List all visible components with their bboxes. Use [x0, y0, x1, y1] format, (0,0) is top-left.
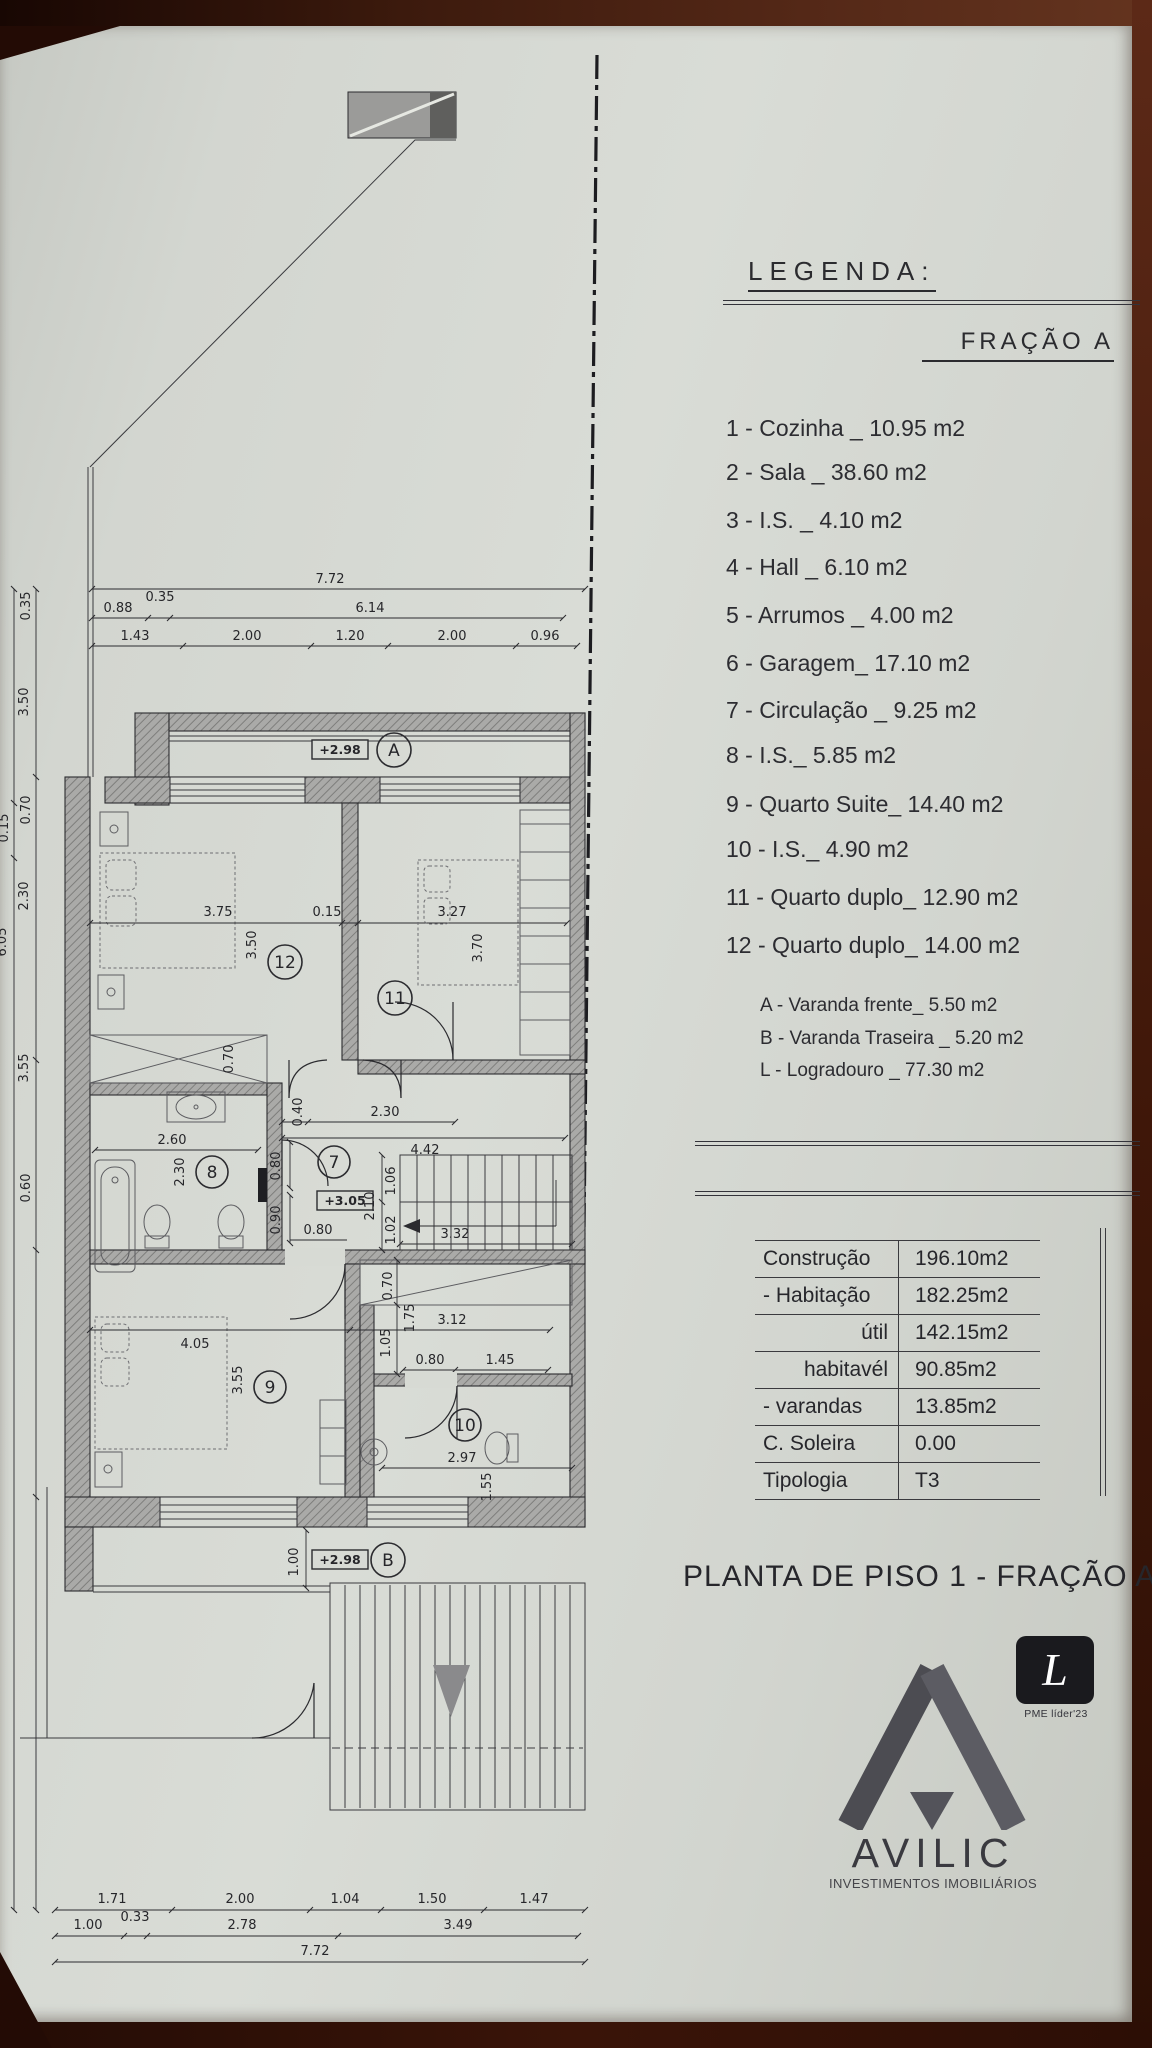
balcony-b: 1.00 +2.98 B	[93, 1527, 405, 1592]
sheet-title: PLANTA DE PISO 1 - FRAÇÃO A	[683, 1560, 1152, 1594]
dim-label: 1.55	[480, 1473, 495, 1502]
room-label: B	[382, 1551, 394, 1571]
table-row-label: - varandas	[755, 1395, 898, 1419]
legend-item: 4 - Hall _ 6.10 m2	[726, 554, 1136, 581]
dim-label: 1.75	[403, 1304, 418, 1333]
frame-line	[1100, 1228, 1106, 1496]
windows	[160, 777, 520, 1527]
dim-label: 2.00	[233, 629, 262, 644]
dim-label: 7.72	[316, 572, 345, 587]
dim-label: 2.60	[158, 1133, 187, 1148]
dim-label: 1.00	[74, 1918, 103, 1933]
table-row-label: C. Soleira	[755, 1432, 898, 1456]
dim-label: 1.71	[98, 1892, 127, 1907]
photo-background-bottom	[0, 2022, 1152, 2048]
dim-label: 3.50	[17, 688, 32, 717]
legend-item: 5 - Arrumos _ 4.00 m2	[726, 602, 1136, 629]
legend-item: 7 - Circulação _ 9.25 m2	[726, 697, 1136, 724]
legend-item: 6 - Garagem_ 17.10 m2	[726, 650, 1136, 677]
room-label: 11	[384, 989, 406, 1009]
dim-label: 0.80	[416, 1353, 445, 1368]
table-row-label: habitavél	[755, 1358, 898, 1382]
table-row: - Habitação 182.25m2	[755, 1278, 1040, 1315]
dim-label: 1.02	[384, 1216, 399, 1245]
table-row: útil 142.15m2	[755, 1315, 1040, 1352]
room-9-suite: 4.05 3.12 3.55 9	[87, 1248, 553, 1487]
terrace-deck	[330, 1583, 585, 1810]
divider-rule	[695, 1191, 1140, 1196]
table-row-value: 142.15m2	[898, 1315, 1040, 1351]
photo-of-floor-plan-sheet: 7.72 0.88 0.35 6.14 1.43 2.00 1.20 2.00 …	[0, 0, 1152, 2048]
dim-label: 2.00	[226, 1892, 255, 1907]
bathroom-10: 10 2.97 1.55	[361, 1372, 575, 1501]
table-row-value: 90.85m2	[898, 1352, 1040, 1388]
entrance-canopy	[348, 92, 456, 138]
dim-label: 4.05	[181, 1337, 210, 1352]
photo-background-top	[0, 0, 1152, 26]
avilic-logo-mark	[822, 1640, 1042, 1830]
dim-label: 0.90	[269, 1206, 284, 1235]
brand-tagline: INVESTIMENTOS IMOBILIÁRIOS	[798, 1876, 1068, 1891]
dim-label: 0.96	[531, 629, 560, 644]
fraction-heading: FRAÇÃO A	[922, 328, 1114, 362]
room-11-quarto: 3.27 3.70 11	[378, 810, 570, 1060]
dim-label: 0.70	[19, 796, 34, 825]
table-row-value: 0.00	[898, 1426, 1040, 1462]
legend-item: 8 - I.S._ 5.85 m2	[726, 742, 1136, 769]
legend-item: 10 - I.S._ 4.90 m2	[726, 836, 1136, 863]
dim-label: 0.35	[19, 592, 34, 621]
areas-table: Construção 196.10m2 - Habitação 182.25m2…	[755, 1240, 1040, 1500]
room-label: A	[388, 741, 400, 761]
dim-label: 0.33	[121, 1910, 150, 1925]
legend-sub-item: A - Varanda frente_ 5.50 m2	[760, 995, 1140, 1017]
table-row-label: útil	[755, 1321, 898, 1345]
pme-lider-badge: L	[1016, 1636, 1094, 1704]
dim-label: 0.70	[222, 1045, 237, 1074]
level-label: +2.98	[319, 1552, 360, 1567]
table-row: Tipologia T3	[755, 1463, 1040, 1500]
dim-label: 0.35	[146, 590, 175, 605]
legend-item: 12 - Quarto duplo_ 14.00 m2	[726, 932, 1136, 959]
dim-label: 3.49	[444, 1918, 473, 1933]
legend-item: 11 - Quarto duplo_ 12.90 m2	[726, 884, 1136, 911]
room-label: 9	[265, 1378, 276, 1398]
staircase: 2.10 1.06 1.02	[363, 1152, 572, 1253]
table-row-value: 196.10m2	[898, 1241, 1040, 1277]
dim-label: 0.80	[304, 1223, 333, 1238]
dimension-chain-top: 7.72 0.88 0.35 6.14 1.43 2.00 1.20 2.00 …	[89, 572, 588, 649]
dim-label: 3.70	[471, 934, 486, 963]
photo-background-right	[1132, 0, 1152, 2048]
dim-label: 3.55	[17, 1054, 32, 1083]
brand-wordmark: AVILIC	[828, 1830, 1038, 1877]
dim-label: 0.15	[0, 814, 12, 843]
dim-label: 3.75	[204, 905, 233, 920]
divider-rule	[695, 1141, 1140, 1146]
direction-arrow	[433, 1665, 470, 1717]
table-row: C. Soleira 0.00	[755, 1426, 1040, 1463]
room-12-quarto: 3.75 0.15 3.50 12 0.70	[87, 812, 570, 1083]
level-label: +2.98	[319, 742, 360, 757]
table-row-value: 182.25m2	[898, 1278, 1040, 1314]
dim-label: 1.47	[520, 1892, 549, 1907]
dim-label: 1.06	[384, 1167, 399, 1196]
dim-label: 1.20	[336, 629, 365, 644]
dim-label: 1.43	[121, 629, 150, 644]
dim-label: 1.00	[287, 1548, 302, 1577]
table-row: habitavél 90.85m2	[755, 1352, 1040, 1389]
dim-label: 3.32	[441, 1227, 470, 1242]
legend-item: 9 - Quarto Suite_ 14.40 m2	[726, 791, 1136, 818]
dim-label: 2.30	[173, 1158, 188, 1187]
dim-label: 3.12	[438, 1313, 467, 1328]
dim-label: 2.97	[448, 1451, 477, 1466]
dim-label: 4.42	[411, 1143, 440, 1158]
dim-label: 0.15	[313, 905, 342, 920]
legend-item: 2 - Sala _ 38.60 m2	[726, 459, 1136, 486]
table-row: Construção 196.10m2	[755, 1241, 1040, 1278]
room-label: 10	[454, 1416, 476, 1436]
dim-label: 3.27	[438, 905, 467, 920]
dim-label: 0.88	[104, 601, 133, 616]
dim-label: 2.30	[17, 882, 32, 911]
dim-label: 0.40	[291, 1098, 306, 1127]
floor-plan-drawing: 7.72 0.88 0.35 6.14 1.43 2.00 1.20 2.00 …	[0, 40, 620, 1980]
pme-lider-label: PME líder'23	[1004, 1708, 1108, 1720]
dim-label: 6.14	[356, 601, 385, 616]
dim-label: 3.55	[231, 1366, 246, 1395]
dim-label: 2.78	[228, 1918, 257, 1933]
table-row-label: Construção	[755, 1247, 898, 1271]
level-label: +3.05	[324, 1193, 365, 1208]
dimension-chain-left: 0.35 3.50 0.70 2.30 3.55 0.60 0.15 6.05	[0, 586, 39, 1913]
room-label: 8	[207, 1163, 218, 1183]
dim-label: 2.10	[363, 1192, 378, 1221]
table-row-value: T3	[898, 1463, 1040, 1499]
divider-rule	[723, 300, 1140, 305]
dimension-chain-bottom: 1.71 2.00 1.04 1.50 1.47 1.00 0.33 2.78 …	[52, 1892, 588, 1965]
legend-sub-item: B - Varanda Traseira _ 5.20 m2	[760, 1028, 1140, 1050]
dim-label: 0.60	[19, 1174, 34, 1203]
balcony-a: +2.98 A	[312, 733, 411, 767]
room-label: 7	[329, 1153, 340, 1173]
dim-label: 1.05	[379, 1329, 394, 1358]
dim-label: 1.04	[331, 1892, 360, 1907]
table-row-label: - Habitação	[755, 1284, 898, 1308]
dim-label: 3.50	[245, 931, 260, 960]
dim-label: 0.70	[381, 1272, 396, 1301]
legend-sub-item: L - Logradouro _ 77.30 m2	[760, 1060, 1140, 1082]
table-row: - varandas 13.85m2	[755, 1389, 1040, 1426]
room-label: 12	[274, 953, 296, 973]
dim-label: 1.45	[486, 1353, 515, 1368]
pme-lider-letter: L	[1042, 1647, 1068, 1693]
dim-label: 7.72	[301, 1944, 330, 1959]
legend-item: 1 - Cozinha _ 10.95 m2	[726, 415, 1136, 442]
dim-label: 1.50	[418, 1892, 447, 1907]
legend-item: 3 - I.S. _ 4.10 m2	[726, 507, 1136, 534]
dim-label: 2.30	[371, 1105, 400, 1120]
dim-label: 2.00	[438, 629, 467, 644]
legend-title: LEGENDA:	[748, 256, 936, 292]
table-row-value: 13.85m2	[898, 1389, 1040, 1425]
table-row-label: Tipologia	[755, 1469, 898, 1493]
dim-label: 6.05	[0, 928, 10, 957]
